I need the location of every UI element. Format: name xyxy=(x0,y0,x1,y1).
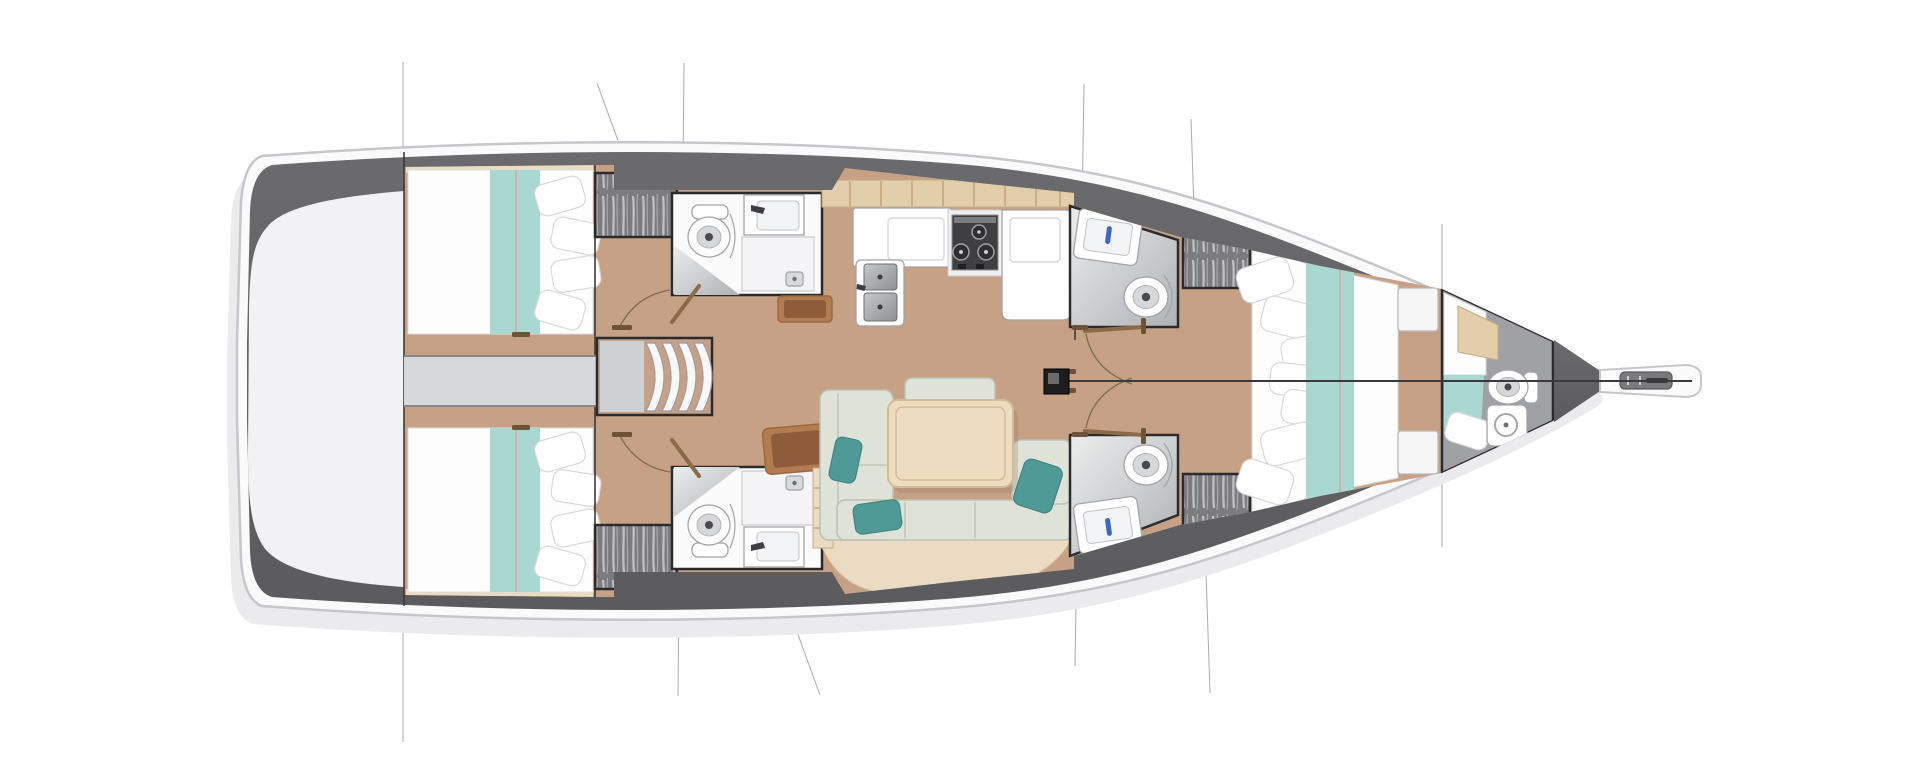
counter xyxy=(853,208,952,267)
aft-head-starboard xyxy=(672,467,822,569)
sink xyxy=(744,195,804,235)
stern-deck xyxy=(248,191,404,587)
yacht-floorplan xyxy=(0,0,1920,778)
yacht-floorplan-page xyxy=(0,0,1920,778)
stove-knobs xyxy=(954,217,996,223)
mast-core xyxy=(1048,373,1059,384)
corridor-floor xyxy=(404,356,598,406)
sink xyxy=(744,527,804,567)
companionway-stairs xyxy=(597,338,712,415)
forward-locker-port xyxy=(1398,288,1438,331)
shower xyxy=(742,471,814,525)
chart-desk-port xyxy=(778,296,832,322)
forward-locker-starboard xyxy=(1398,431,1438,474)
double-steel-sink xyxy=(856,260,904,326)
salon-table xyxy=(888,400,1018,493)
mast xyxy=(1044,369,1069,394)
stairs-landing xyxy=(600,341,644,412)
aft-cabin-port xyxy=(406,152,603,356)
aft-cabin-starboard xyxy=(406,406,603,610)
aft-head-port xyxy=(672,193,822,295)
teal-runner xyxy=(490,428,540,592)
teal-runner xyxy=(490,170,540,334)
aft-corridor xyxy=(404,356,598,406)
stove-3-burner xyxy=(948,210,1002,276)
shower xyxy=(742,237,814,291)
toilet xyxy=(1488,370,1538,404)
